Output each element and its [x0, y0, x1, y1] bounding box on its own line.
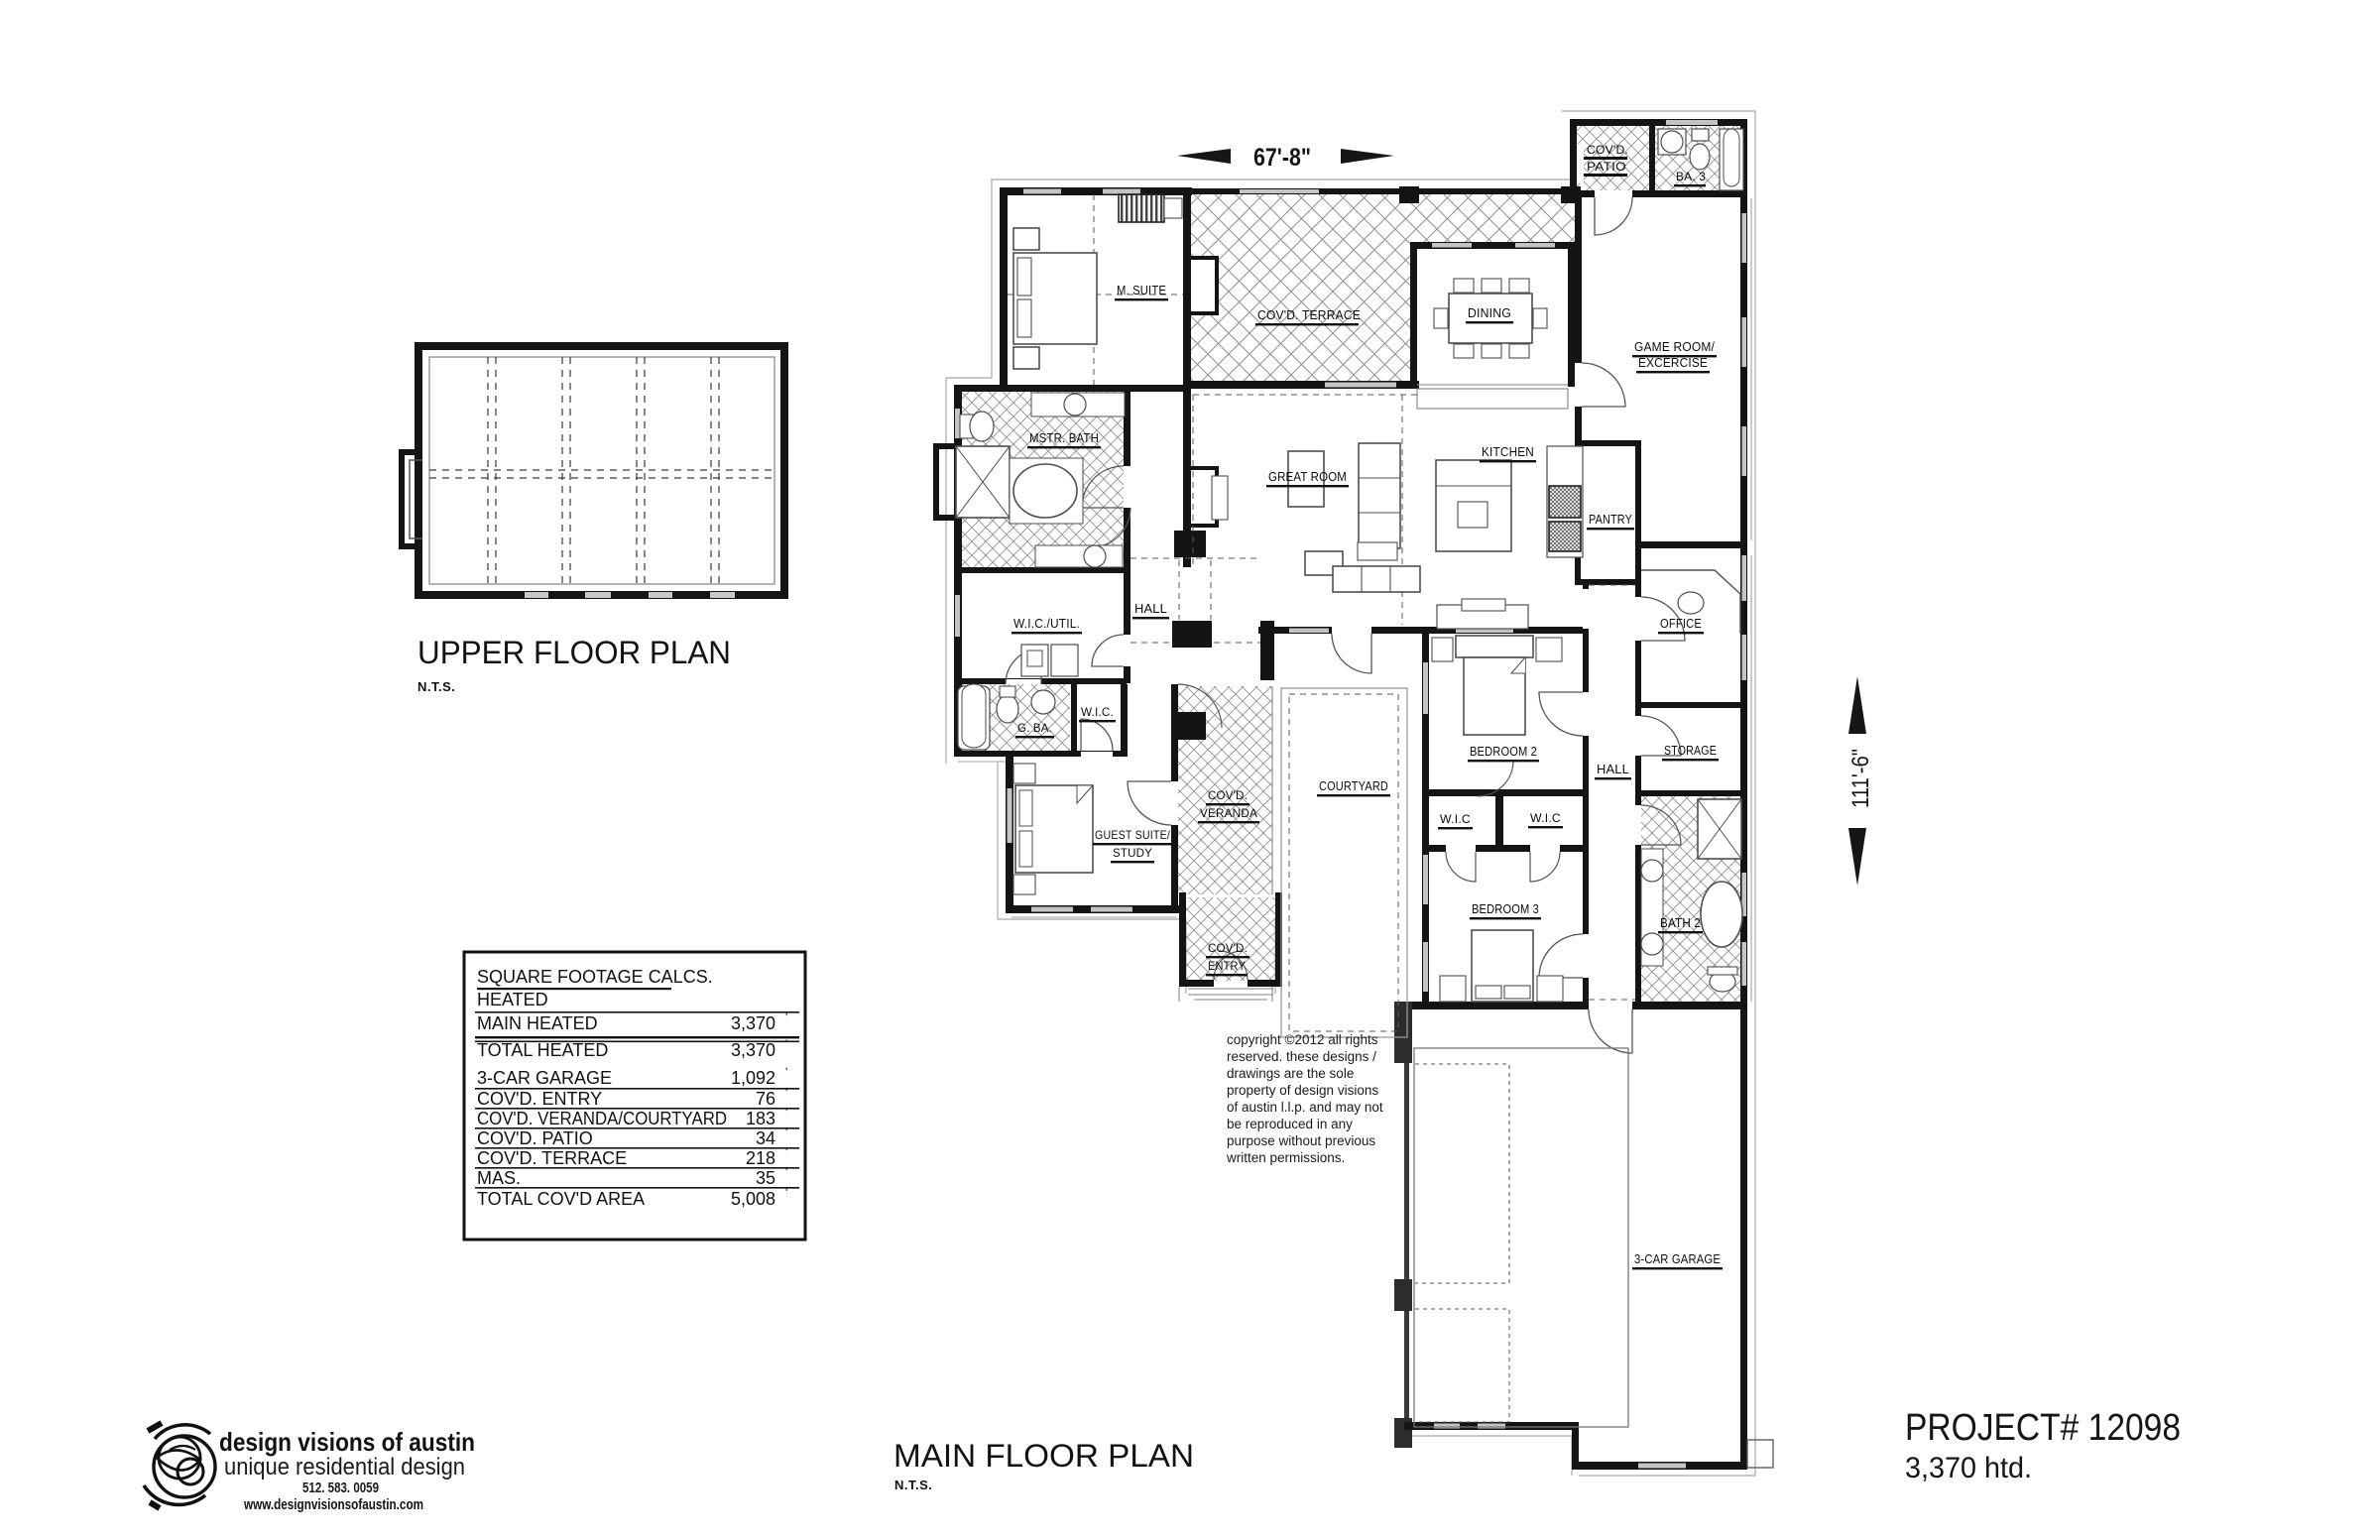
- svg-text:76: 76: [756, 1089, 775, 1109]
- svg-text:of austin l.l.p. and may not: of austin l.l.p. and may not: [1227, 1100, 1383, 1115]
- svg-text:MSTR. BATH: MSTR. BATH: [1029, 430, 1099, 445]
- svg-text:BA. 3: BA. 3: [1676, 170, 1706, 183]
- svg-text:3,370: 3,370: [731, 1040, 775, 1060]
- svg-text:COV'D.: COV'D.: [1587, 143, 1628, 157]
- svg-text:': ': [785, 1086, 787, 1100]
- svg-text:STUDY: STUDY: [1113, 846, 1152, 860]
- svg-text:drawings are the sole: drawings are the sole: [1227, 1066, 1354, 1081]
- svg-text:': ': [785, 1186, 787, 1200]
- svg-text:': ': [785, 1065, 787, 1079]
- svg-text:5,008: 5,008: [731, 1189, 775, 1209]
- svg-text:BEDROOM 3: BEDROOM 3: [1472, 901, 1539, 916]
- svg-text:www.designvisionsofaustin.com: www.designvisionsofaustin.com: [243, 1496, 423, 1513]
- svg-text:be reproduced in any: be reproduced in any: [1227, 1117, 1353, 1131]
- svg-text:3-CAR GARAGE: 3-CAR GARAGE: [1634, 1251, 1721, 1266]
- svg-text:purpose without previous: purpose without previous: [1227, 1133, 1375, 1148]
- svg-text:W.I.C.: W.I.C.: [1081, 705, 1114, 719]
- svg-text:COV'D. ENTRY: COV'D. ENTRY: [477, 1089, 602, 1109]
- svg-text:TOTAL HEATED: TOTAL HEATED: [477, 1040, 608, 1060]
- svg-text:property of design visions: property of design visions: [1227, 1083, 1378, 1098]
- svg-text:TOTAL COV'D AREA: TOTAL COV'D AREA: [477, 1189, 645, 1209]
- svg-text:EXCERCISE: EXCERCISE: [1638, 355, 1708, 370]
- svg-text:3-CAR GARAGE: 3-CAR GARAGE: [477, 1068, 612, 1088]
- svg-text:HEATED: HEATED: [477, 990, 548, 1009]
- svg-text:HALL: HALL: [1597, 762, 1629, 776]
- svg-text:UPPER FLOOR PLAN: UPPER FLOOR PLAN: [417, 635, 731, 670]
- svg-text:GREAT ROOM: GREAT ROOM: [1268, 469, 1347, 484]
- svg-text:183: 183: [746, 1109, 775, 1128]
- svg-text:G. BA.: G. BA.: [1017, 721, 1052, 735]
- svg-text:unique residential design: unique residential design: [224, 1454, 465, 1481]
- svg-text:': ': [785, 1037, 787, 1051]
- svg-text:HALL: HALL: [1134, 601, 1167, 616]
- svg-text:PANTRY: PANTRY: [1589, 512, 1632, 527]
- svg-text:BEDROOM 2: BEDROOM 2: [1470, 744, 1537, 759]
- svg-text:GUEST SUITE/: GUEST SUITE/: [1095, 828, 1170, 842]
- svg-text:STORAGE: STORAGE: [1664, 743, 1717, 758]
- svg-text:M. SUITE: M. SUITE: [1117, 283, 1166, 297]
- svg-text:design visions of austin: design visions of austin: [219, 1427, 475, 1457]
- svg-text:copyright ©2012 all rights: copyright ©2012 all rights: [1227, 1032, 1378, 1047]
- svg-text:MAIN FLOOR PLAN: MAIN FLOOR PLAN: [893, 1438, 1194, 1474]
- svg-text:MAIN HEATED: MAIN HEATED: [477, 1013, 598, 1033]
- svg-text:N.T.S.: N.T.S.: [894, 1478, 932, 1492]
- svg-text:BATH 2: BATH 2: [1660, 915, 1701, 930]
- svg-text:COV'D. VERANDA/COURTYARD: COV'D. VERANDA/COURTYARD: [477, 1109, 727, 1128]
- svg-text:218: 218: [746, 1148, 775, 1168]
- svg-text:written permissions.: written permissions.: [1226, 1150, 1345, 1165]
- svg-text:VERANDA: VERANDA: [1200, 806, 1257, 820]
- svg-text:67'-8": 67'-8": [1253, 144, 1311, 172]
- svg-text:3,370 htd.: 3,370 htd.: [1905, 1452, 2032, 1484]
- svg-text:COV'D.: COV'D.: [1208, 941, 1248, 955]
- svg-text:35: 35: [756, 1168, 775, 1188]
- svg-text:': ': [785, 1165, 787, 1179]
- svg-text:N.T.S.: N.T.S.: [417, 679, 455, 694]
- svg-text:PROJECT# 12098: PROJECT# 12098: [1905, 1407, 2181, 1449]
- svg-text:1,092: 1,092: [731, 1068, 775, 1088]
- svg-text:': ': [785, 1145, 787, 1159]
- svg-text:COV'D. TERRACE: COV'D. TERRACE: [477, 1148, 627, 1168]
- svg-text:PATIO: PATIO: [1587, 160, 1626, 174]
- svg-text:COV'D. PATIO: COV'D. PATIO: [477, 1128, 593, 1148]
- svg-text:': ': [785, 1125, 787, 1139]
- svg-text:COURTYARD: COURTYARD: [1319, 778, 1388, 793]
- svg-text:KITCHEN: KITCHEN: [1482, 444, 1534, 459]
- svg-text:512. 583. 0059: 512. 583. 0059: [302, 1480, 379, 1496]
- svg-text:GAME ROOM/: GAME ROOM/: [1634, 339, 1715, 354]
- svg-text:': ': [785, 1010, 787, 1024]
- svg-text:111'-6": 111'-6": [1847, 749, 1874, 808]
- svg-text:W.I.C: W.I.C: [1440, 812, 1471, 826]
- svg-text:34: 34: [756, 1128, 775, 1148]
- svg-text:3,370: 3,370: [731, 1013, 775, 1033]
- svg-text:COV'D.: COV'D.: [1208, 788, 1248, 802]
- svg-text:': ': [785, 1106, 787, 1120]
- svg-text:SQUARE FOOTAGE CALCS.: SQUARE FOOTAGE CALCS.: [477, 967, 713, 987]
- svg-text:W.I.C: W.I.C: [1530, 811, 1561, 825]
- svg-text:ENTRY: ENTRY: [1208, 959, 1246, 973]
- svg-text:W.I.C./UTIL.: W.I.C./UTIL.: [1013, 616, 1080, 631]
- svg-text:DINING: DINING: [1468, 305, 1511, 320]
- svg-text:reserved. these designs /: reserved. these designs /: [1227, 1049, 1376, 1064]
- svg-text:COV'D. TERRACE: COV'D. TERRACE: [1257, 307, 1361, 322]
- svg-text:MAS.: MAS.: [477, 1168, 521, 1188]
- svg-text:OFFICE: OFFICE: [1660, 616, 1702, 631]
